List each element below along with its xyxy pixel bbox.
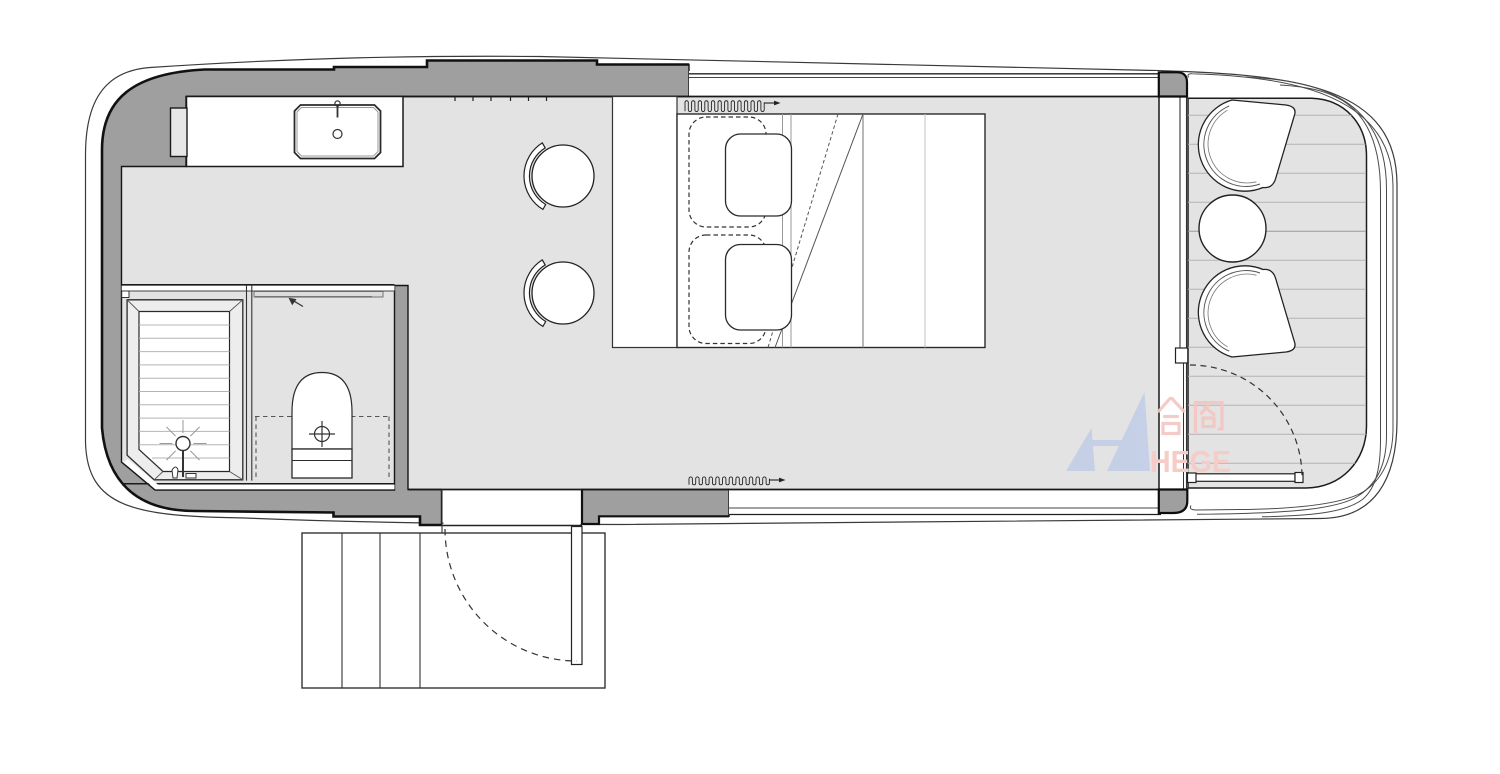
svg-text:HEGE: HEGE (1150, 445, 1231, 479)
